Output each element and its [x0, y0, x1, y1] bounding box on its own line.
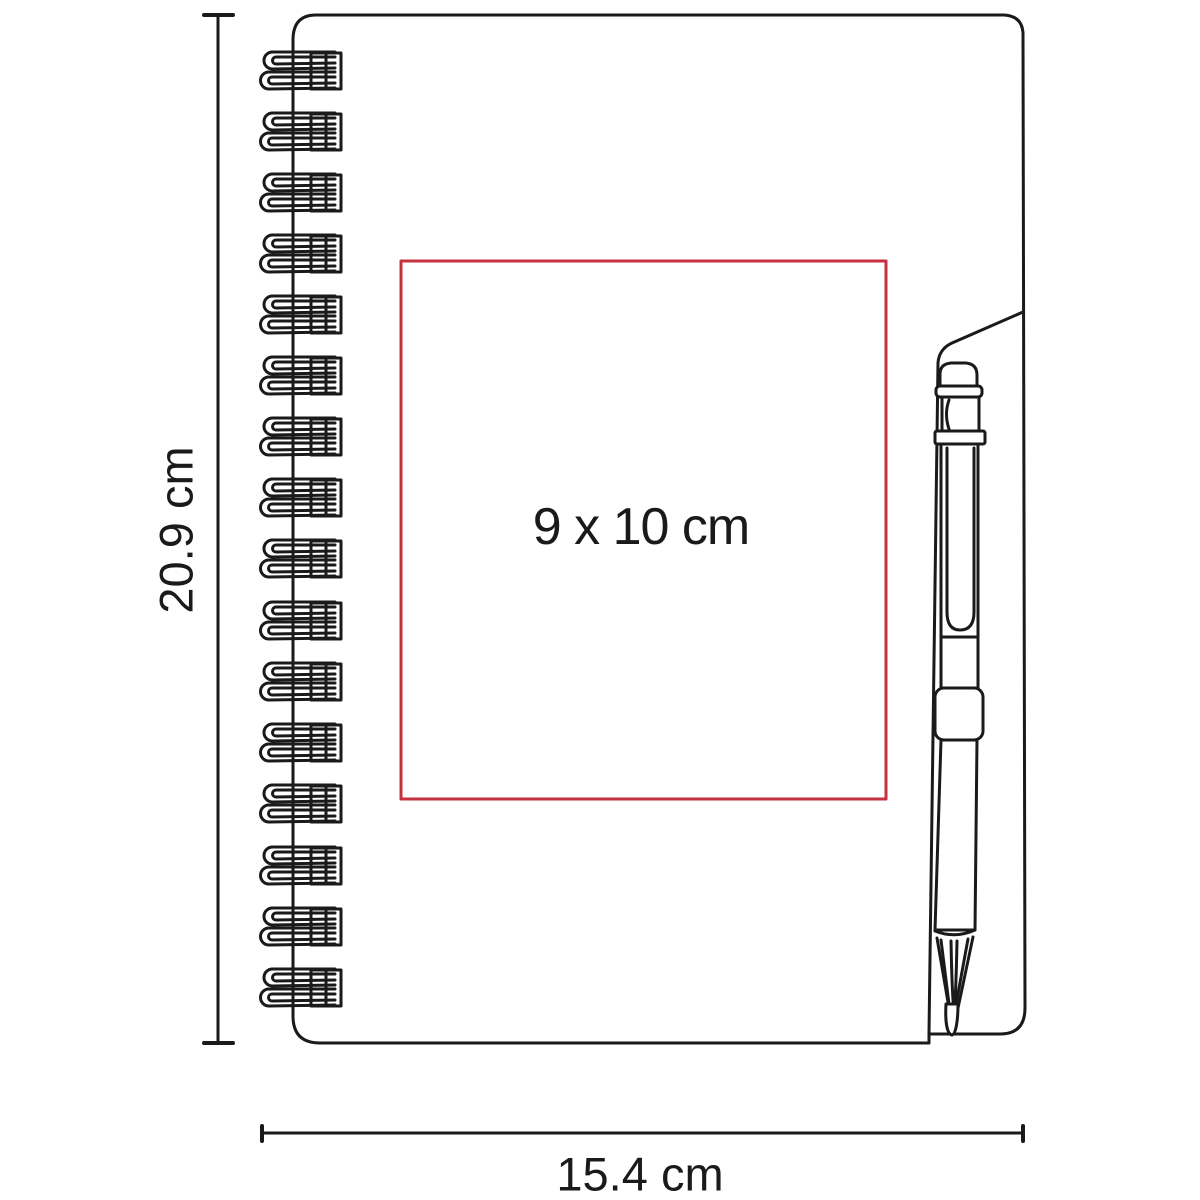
pen-cone	[935, 930, 975, 1012]
pen-collar	[936, 386, 982, 397]
spiral-ring	[261, 724, 342, 761]
spiral-ring	[261, 602, 342, 639]
spiral-ring	[261, 847, 342, 884]
pen-button	[940, 363, 977, 387]
width-dimension-label: 15.4 cm	[556, 1147, 723, 1200]
pen-illustration	[935, 363, 985, 1035]
notebook-illustration	[204, 15, 1025, 1141]
width-dimension-line	[262, 1126, 1023, 1141]
product-dimension-diagram: 20.9 cm 15.4 cm 9 x 10 cm	[0, 0, 1200, 1200]
height-dimension-line	[204, 15, 233, 1043]
spiral-ring	[261, 785, 342, 822]
spiral-ring	[261, 663, 342, 700]
spiral-ring	[261, 296, 342, 333]
spiral-ring	[261, 174, 342, 211]
height-dimension-label: 20.9 cm	[149, 446, 204, 613]
pen-lower-barrel	[935, 740, 977, 930]
pen-tip	[946, 1004, 958, 1035]
spiral-ring	[261, 969, 342, 1006]
pen-flange	[935, 431, 985, 444]
spiral-ring	[261, 52, 342, 89]
spiral-ring	[261, 908, 342, 945]
spiral-ring	[261, 540, 342, 577]
print-area-label: 9 x 10 cm	[533, 497, 749, 557]
spiral-ring	[261, 235, 342, 272]
spiral-rings	[261, 52, 342, 1006]
spiral-ring	[261, 479, 342, 516]
spiral-ring	[261, 113, 342, 150]
pen-grip	[935, 688, 983, 740]
spiral-ring	[261, 357, 342, 394]
spiral-ring	[261, 418, 342, 455]
